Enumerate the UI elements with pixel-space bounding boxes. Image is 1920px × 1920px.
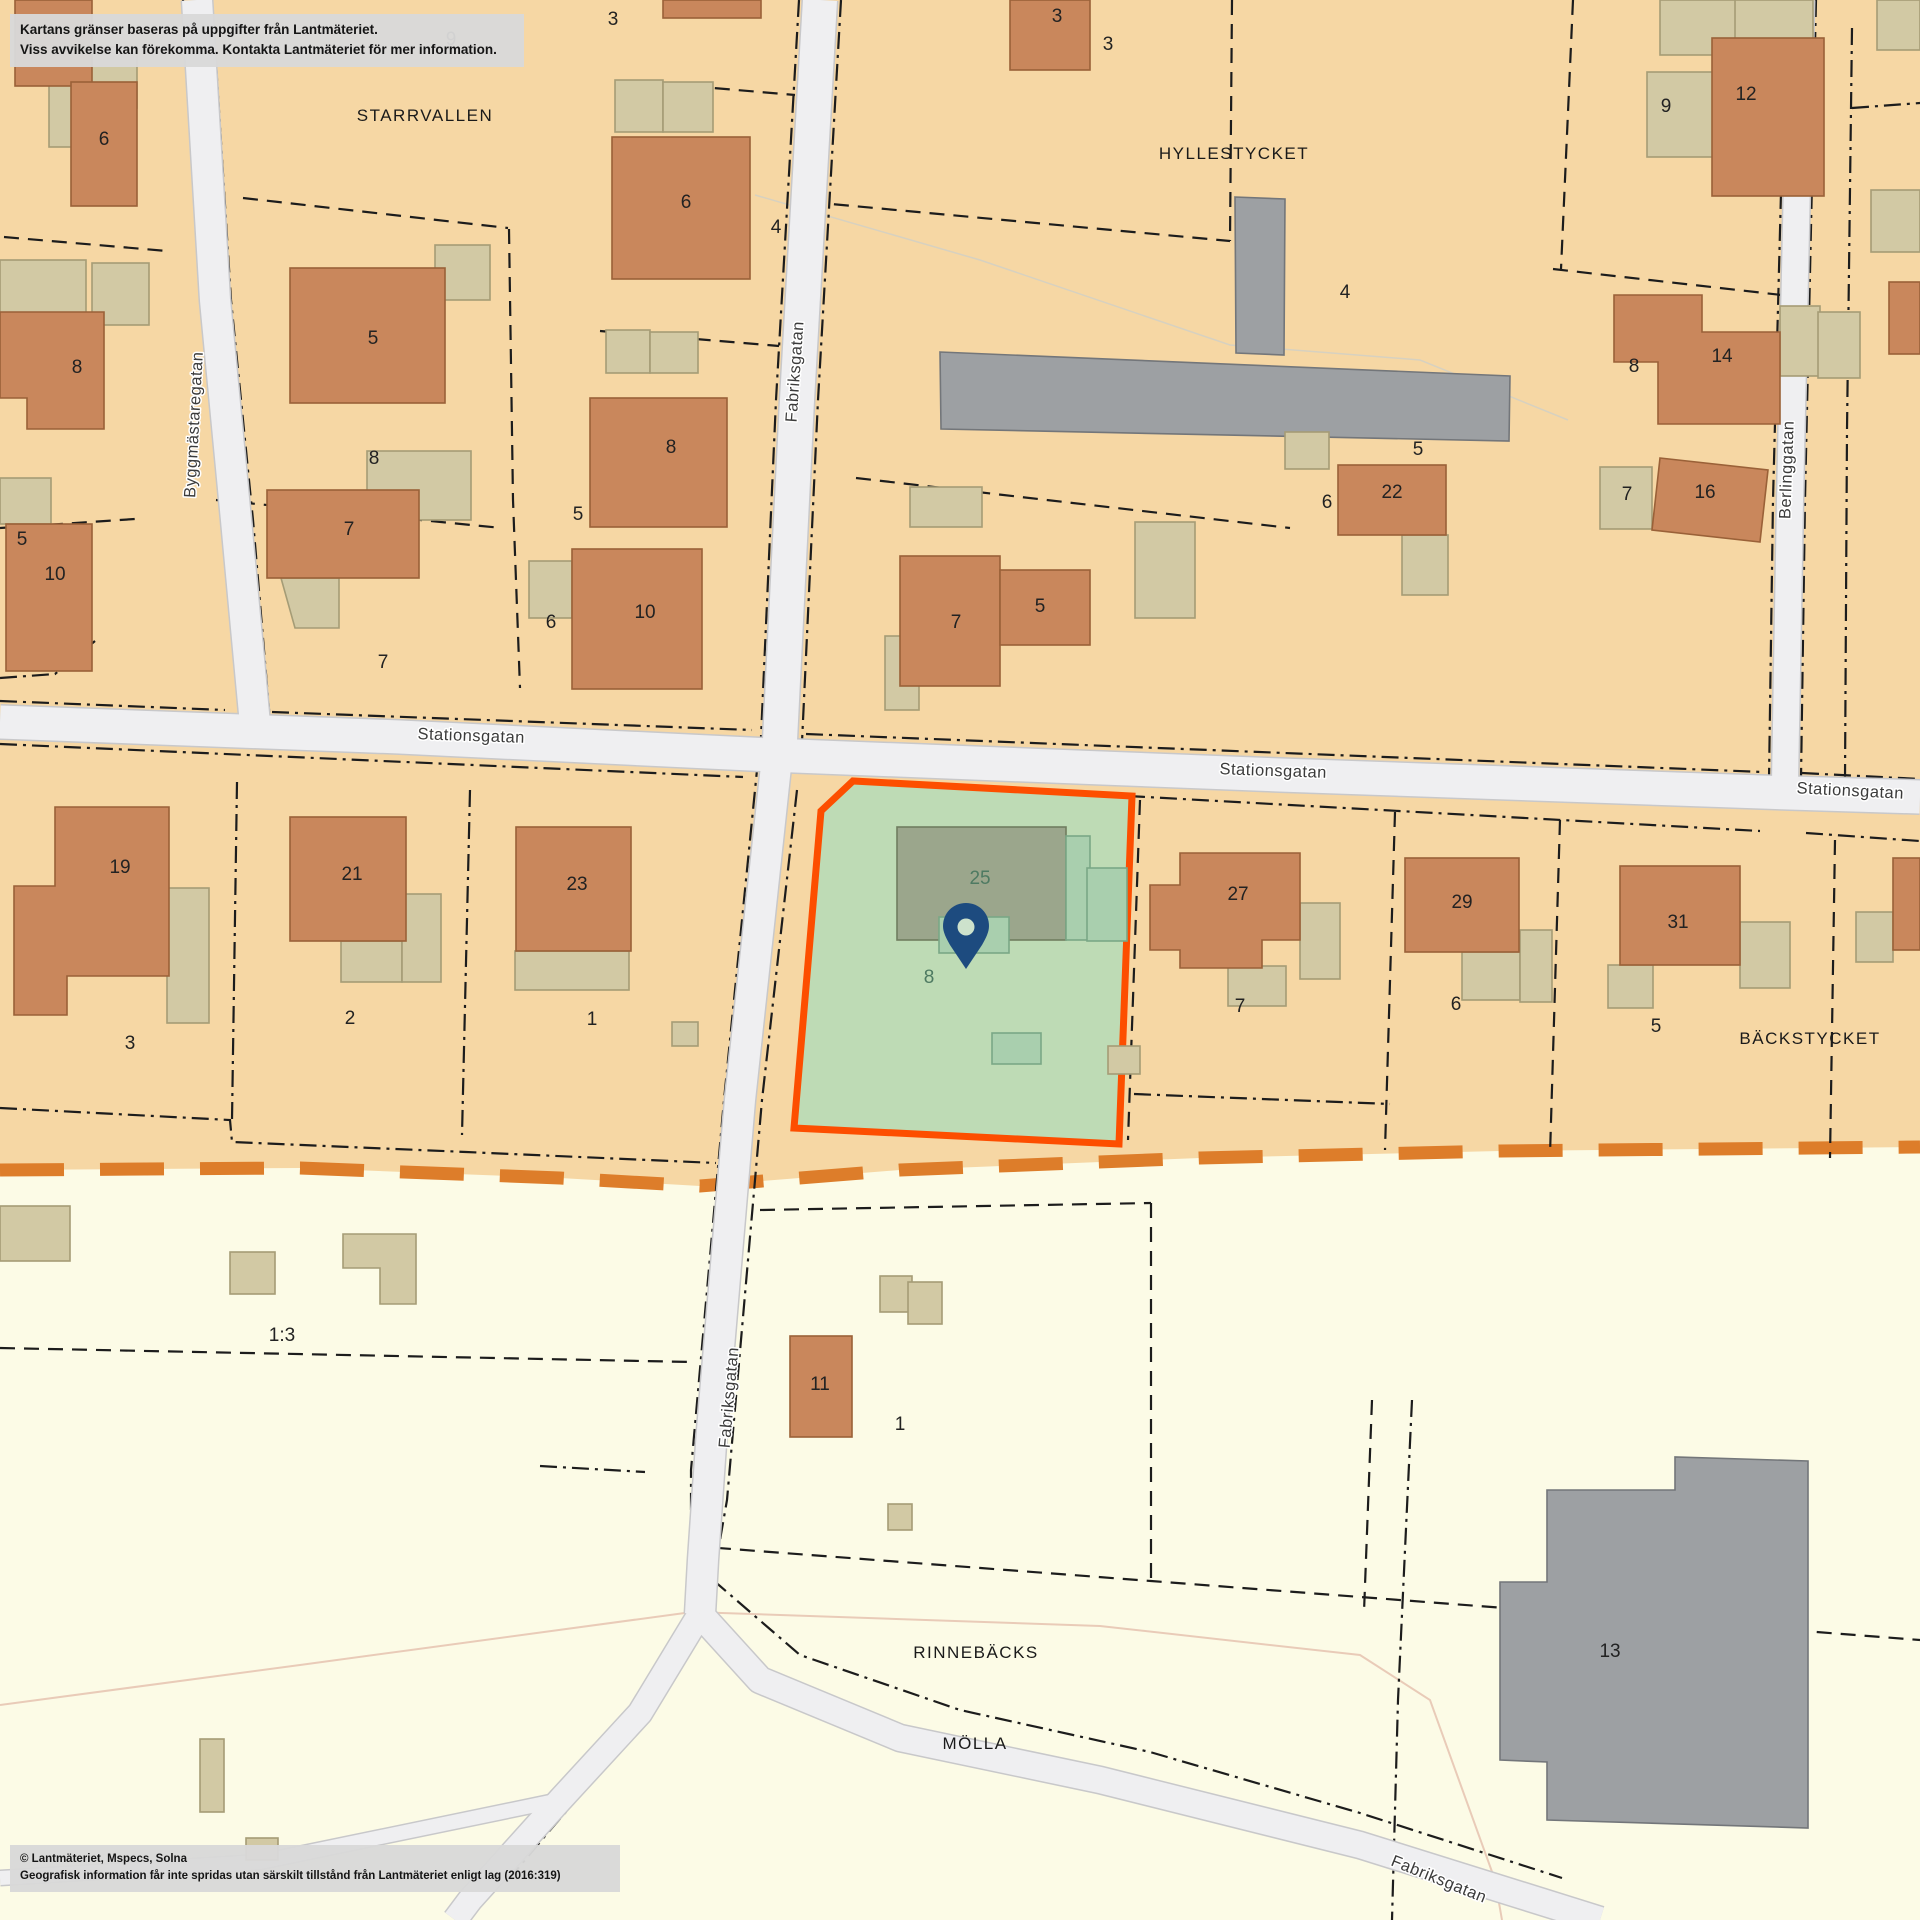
house-40 [1712, 38, 1824, 196]
selected-parcel-label-39: 8 [924, 967, 935, 988]
outbuilding-31 [1285, 432, 1329, 469]
parcel-number-label-21: 5 [1413, 439, 1424, 460]
outbuilding-10 [663, 82, 713, 132]
large-building-75 [1500, 1457, 1808, 1828]
large-building-25 [1235, 197, 1285, 355]
parcel-number-label-20: 4 [1340, 282, 1351, 303]
outbuilding-26 [910, 487, 982, 527]
parcel-number-label-13: 7 [344, 519, 355, 540]
outbuilding-64 [1108, 1046, 1140, 1074]
parcel-number-label-33: 3 [125, 1033, 136, 1054]
map-stage[interactable]: 3968105STARRVALLEN6458857710633HYLLESTYC… [0, 0, 1920, 1920]
area-name-label-51: RINNEBÄCKS [913, 1643, 1039, 1662]
parcel-number-label-50: 13 [1599, 1641, 1620, 1662]
parcel-number-label-9: 5 [368, 328, 379, 349]
outbuilding-15 [606, 330, 650, 373]
outbuilding-56 [1462, 952, 1520, 1000]
parcel-number-label-41: 7 [1235, 996, 1246, 1017]
outbuilding-39 [1647, 72, 1715, 157]
parcel-number-label-42: 29 [1451, 892, 1472, 913]
parcel-number-label-49: 1 [895, 1414, 906, 1435]
outbuilding-73 [230, 1252, 275, 1294]
outbuilding-4 [0, 260, 86, 316]
parcel-number-label-23: 12 [1735, 84, 1756, 105]
parcel-number-label-17: 3 [1052, 6, 1063, 27]
parcel-number-label-37: 1 [587, 1009, 598, 1030]
parcel-number-label-25: 8 [1629, 356, 1640, 377]
outbuilding-60 [1608, 965, 1653, 1008]
parcel-number-label-31: 5 [1035, 596, 1046, 617]
area-name-label-6: STARRVALLEN [357, 106, 494, 125]
outbuilding-32 [1402, 535, 1448, 595]
parcel-number-label-14: 7 [378, 652, 389, 673]
selected-annex-building-78 [1087, 868, 1127, 941]
outbuilding-54 [1300, 903, 1340, 979]
street-name-label-56: Stationsgatan [1219, 760, 1327, 782]
copyright-line2: Geografisk information får inte spridas … [20, 1868, 610, 1885]
outbuilding-49 [402, 894, 441, 982]
outbuilding-71 [200, 1739, 224, 1812]
house-17 [590, 398, 727, 527]
map-canvas[interactable]: 3968105STARRVALLEN6458857710633HYLLESTYC… [0, 0, 1920, 1920]
copyright-line1: © Lantmäteriet, Mspecs, Solna [20, 1851, 610, 1868]
parcel-number-label-18: 3 [1103, 34, 1114, 55]
outbuilding-48 [341, 941, 402, 982]
parcel-number-label-7: 6 [681, 192, 692, 213]
outbuilding-42 [1818, 312, 1860, 378]
outbuilding-16 [650, 332, 698, 373]
outbuilding-57 [1520, 930, 1552, 1002]
outbuilding-9 [615, 80, 663, 132]
disclaimer-line2: Viss avvikelse kan förekomma. Kontakta L… [20, 40, 514, 60]
parcel-number-label-0: 3 [608, 9, 619, 30]
parcel-number-label-27: 6 [1322, 492, 1333, 513]
outbuilding-44 [1871, 190, 1920, 252]
outbuilding-65 [672, 1022, 698, 1046]
disclaimer-box: Kartans gränser baseras på uppgifter frå… [10, 14, 524, 67]
outbuilding-30 [1135, 522, 1195, 618]
parcel-number-label-36: 23 [566, 874, 587, 895]
parcel-number-label-24: 14 [1711, 346, 1733, 367]
parcel-number-label-48: 11 [810, 1374, 830, 1395]
selected-annex-building-80 [992, 1033, 1041, 1064]
parcel-number-label-44: 31 [1667, 912, 1688, 933]
parcel-number-label-22: 9 [1661, 96, 1672, 117]
parcel-number-label-12: 5 [573, 504, 584, 525]
outbuilding-46 [167, 888, 209, 1023]
outbuilding-59 [1740, 922, 1790, 988]
outbuilding-38 [1877, 0, 1920, 50]
parcel-number-label-15: 10 [634, 602, 655, 623]
street-name-label-58: Berlinggatan [1776, 420, 1797, 519]
parcel-number-label-35: 2 [345, 1008, 356, 1029]
area-name-label-19: HYLLESTYCKET [1159, 144, 1309, 163]
parcel-number-label-10: 8 [369, 448, 380, 469]
area-name-label-46: BÄCKSTYCKET [1739, 1029, 1880, 1048]
parcel-number-label-40: 27 [1227, 884, 1248, 905]
outbuilding-7 [0, 478, 51, 524]
outbuilding-67 [908, 1282, 942, 1324]
parcel-number-label-5: 5 [17, 529, 28, 550]
parcel-number-label-3: 8 [72, 357, 83, 378]
parcel-number-label-34: 21 [341, 864, 362, 885]
area-name-label-52: MÖLLA [942, 1734, 1007, 1753]
selected-parcel-label-38: 25 [969, 868, 990, 889]
parcel-number-label-26: 22 [1381, 482, 1402, 503]
parcel-number-label-47: 1:3 [269, 1325, 295, 1346]
parcel-number-label-16: 6 [546, 612, 557, 633]
house-45 [1889, 282, 1920, 354]
outbuilding-69 [888, 1504, 912, 1530]
parcel-number-label-43: 6 [1451, 994, 1462, 1015]
parcel-number-label-32: 19 [109, 857, 130, 878]
house-63 [1893, 858, 1920, 950]
house-11 [663, 0, 761, 18]
pin-hole [958, 919, 975, 936]
parcel-number-label-30: 7 [951, 612, 962, 633]
parcel-number-label-45: 5 [1651, 1016, 1662, 1037]
copyright-box: © Lantmäteriet, Mspecs, Solna Geografisk… [10, 1845, 620, 1892]
outbuilding-62 [1856, 912, 1893, 962]
outbuilding-72 [0, 1206, 70, 1261]
outbuilding-41 [1780, 306, 1820, 376]
outbuilding-51 [515, 951, 629, 990]
parcel-number-label-2: 6 [99, 129, 110, 150]
parcel-number-label-8: 4 [771, 217, 782, 238]
outbuilding-21 [529, 561, 572, 618]
parcel-number-label-29: 7 [1622, 484, 1633, 505]
parcel-number-label-28: 16 [1694, 482, 1715, 503]
house-23 [1010, 0, 1090, 70]
disclaimer-line1: Kartans gränser baseras på uppgifter frå… [20, 20, 514, 40]
parcel-number-label-11: 8 [666, 437, 677, 458]
parcel-number-label-4: 10 [44, 564, 65, 585]
street-name-label-55: Stationsgatan [417, 725, 525, 747]
